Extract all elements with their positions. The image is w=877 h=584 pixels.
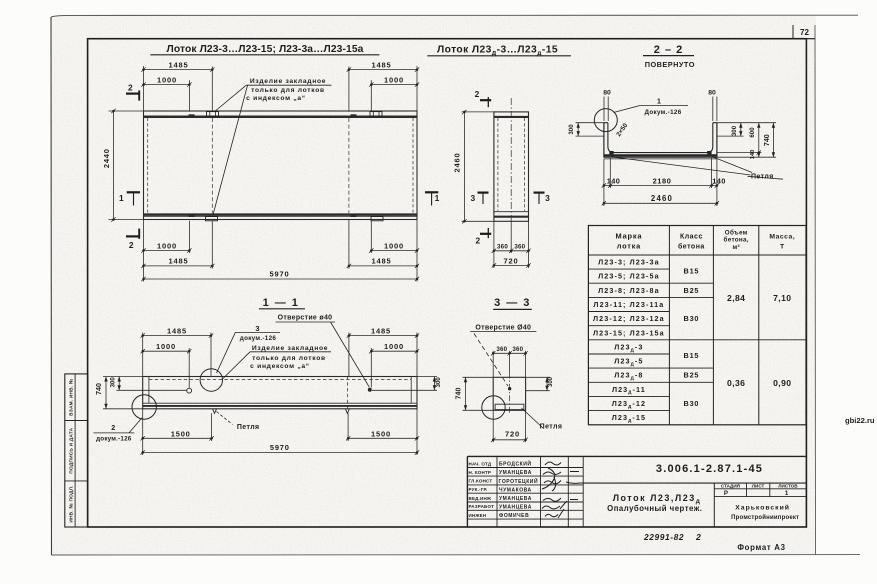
svg-text:Класс: Класс: [680, 234, 703, 241]
svg-text:ГОРОТЕЦКИЙ: ГОРОТЕЦКИЙ: [499, 477, 539, 485]
svg-text:Лоток Л23-3…Л23-15; Л23-3а…Л23: Лоток Л23-3…Л23-15; Л23-3а…Л23-15а: [167, 44, 364, 55]
svg-text:1: 1: [785, 490, 789, 497]
svg-text:1000: 1000: [157, 76, 177, 85]
svg-text:Л23-5; Л23-5а: Л23-5; Л23-5а: [598, 272, 660, 281]
svg-text:360: 360: [512, 346, 523, 353]
svg-text:300: 300: [548, 376, 554, 387]
svg-text:ЧУМАКОВА: ЧУМАКОВА: [499, 487, 532, 493]
svg-text:2: 2: [695, 532, 701, 542]
svg-text:докум.-126: докум.-126: [96, 436, 132, 443]
svg-text:2440: 2440: [102, 148, 111, 168]
svg-text:2: 2: [129, 240, 134, 250]
svg-text:2460: 2460: [453, 153, 462, 173]
svg-text:600: 600: [749, 127, 756, 138]
svg-text:Т: Т: [780, 244, 785, 251]
svg-text:м³: м³: [733, 244, 740, 251]
svg-text:2,84: 2,84: [727, 293, 745, 303]
svg-text:740: 740: [763, 134, 771, 146]
svg-text:ВЕД.ИНЖ: ВЕД.ИНЖ: [469, 496, 492, 501]
svg-text:Изделие закладное: Изделие закладное: [252, 345, 328, 352]
svg-text:140: 140: [607, 177, 621, 186]
svg-text:В30: В30: [684, 399, 700, 408]
svg-text:ФОМИЧЕВ: ФОМИЧЕВ: [499, 513, 529, 519]
svg-text:2 – 2: 2 – 2: [654, 44, 683, 56]
svg-text:ГЛ.КОНСТ: ГЛ.КОНСТ: [469, 479, 493, 484]
svg-text:ПОДПИСЬ И ДАТА: ПОДПИСЬ И ДАТА: [69, 427, 75, 473]
svg-text:3.006.1-2.87.1-45: 3.006.1-2.87.1-45: [656, 463, 763, 475]
svg-text:СТАДИЯ: СТАДИЯ: [721, 484, 740, 489]
svg-text:Л23-15; Л23-15а: Л23-15; Л23-15а: [593, 328, 665, 337]
svg-text:Л23-12; Л23-12а: Л23-12; Л23-12а: [593, 314, 665, 323]
svg-text:1500: 1500: [371, 429, 391, 438]
svg-text:с индексом „а“: с индексом „а“: [250, 363, 310, 370]
svg-text:140: 140: [712, 177, 726, 186]
svg-text:Объем: Объем: [725, 229, 748, 237]
svg-text:УМАНЦЕВА: УМАНЦЕВА: [499, 504, 532, 510]
svg-text:1000: 1000: [384, 241, 404, 250]
svg-text:ЛИСТОВ: ЛИСТОВ: [778, 484, 798, 489]
svg-text:1: 1: [435, 193, 440, 203]
svg-text:gbi22.ru: gbi22.ru: [845, 416, 875, 425]
svg-text:В15: В15: [684, 267, 700, 276]
svg-text:с индексом „а“: с индексом „а“: [246, 95, 306, 102]
svg-text:Опалубочный чертеж.: Опалубочный чертеж.: [607, 504, 702, 513]
svg-text:1485: 1485: [372, 60, 392, 69]
svg-text:Р: Р: [724, 490, 728, 497]
svg-text:360: 360: [497, 243, 508, 250]
svg-text:80: 80: [708, 89, 716, 96]
svg-text:Формат А3: Формат А3: [737, 543, 785, 552]
svg-text:1485: 1485: [372, 257, 392, 266]
svg-text:ИНЖЕН: ИНЖЕН: [469, 513, 487, 518]
svg-text:1485: 1485: [169, 60, 189, 69]
svg-text:3: 3: [545, 193, 550, 203]
svg-text:1500: 1500: [171, 429, 191, 438]
svg-text:УМАНЦЕВА: УМАНЦЕВА: [499, 470, 532, 476]
svg-text:5970: 5970: [270, 270, 290, 279]
svg-text:0,36: 0,36: [727, 378, 745, 388]
svg-text:3: 3: [255, 324, 259, 333]
svg-text:только для лотков: только для лотков: [252, 355, 326, 362]
svg-text:Масса,: Масса,: [769, 234, 795, 241]
svg-text:Л23-8; Л23-8а: Л23-8; Л23-8а: [598, 286, 660, 295]
svg-text:300: 300: [731, 125, 738, 136]
svg-text:2: 2: [128, 83, 133, 93]
svg-text:Л23-3; Л23-3а: Л23-3; Л23-3а: [598, 258, 660, 267]
svg-text:2: 2: [475, 236, 480, 246]
svg-text:1 — 1: 1 — 1: [263, 297, 300, 309]
svg-text:300: 300: [568, 124, 575, 135]
svg-text:В25: В25: [684, 286, 700, 295]
svg-text:2180: 2180: [653, 177, 672, 186]
svg-text:РУК.-ГР.: РУК.-ГР.: [469, 487, 488, 492]
svg-text:2460: 2460: [651, 194, 673, 203]
svg-text:Н. КОНТР: Н. КОНТР: [469, 470, 492, 475]
svg-text:1: 1: [657, 98, 661, 105]
svg-text:1000: 1000: [384, 76, 404, 85]
svg-text:УМАНЦЕВА: УМАНЦЕВА: [499, 496, 532, 502]
svg-text:740: 740: [95, 383, 103, 395]
svg-text:Л23-11; Л23-11а: Л23-11; Л23-11а: [593, 300, 664, 309]
svg-text:Марка: Марка: [616, 232, 643, 241]
svg-text:Петля: Петля: [540, 423, 563, 430]
svg-text:только для лотков: только для лотков: [251, 87, 325, 94]
svg-text:140: 140: [750, 149, 756, 160]
svg-text:Петля: Петля: [237, 424, 260, 431]
svg-text:РАЗРАБОТ: РАЗРАБОТ: [469, 504, 495, 509]
svg-text:ИНВ. № ПОДЛ.: ИНВ. № ПОДЛ.: [69, 485, 75, 522]
svg-text:ЛИСТ: ЛИСТ: [752, 484, 765, 489]
svg-text:1000: 1000: [384, 342, 404, 351]
svg-text:5970: 5970: [270, 443, 290, 452]
svg-text:1000: 1000: [157, 241, 177, 250]
svg-text:360: 360: [514, 243, 525, 250]
svg-text:3 — 3: 3 — 3: [494, 297, 531, 309]
svg-text:72: 72: [800, 28, 809, 37]
svg-text:2: 2: [475, 89, 480, 99]
svg-text:1: 1: [119, 193, 124, 203]
svg-text:300: 300: [110, 377, 117, 388]
svg-text:Отверстие ø40: Отверстие ø40: [278, 314, 333, 321]
svg-text:В25: В25: [684, 371, 700, 380]
svg-text:740: 740: [455, 388, 462, 400]
svg-text:720: 720: [504, 256, 519, 265]
svg-text:Петля: Петля: [751, 173, 774, 180]
svg-text:1485: 1485: [169, 257, 189, 266]
svg-text:докум.-126: докум.-126: [240, 335, 277, 342]
svg-text:Изделие закладное: Изделие закладное: [250, 78, 326, 85]
svg-text:В30: В30: [684, 314, 700, 323]
svg-text:7,10: 7,10: [773, 293, 791, 303]
svg-text:Харьковский: Харьковский: [735, 504, 790, 512]
svg-text:бетона,: бетона,: [724, 236, 749, 244]
svg-text:ВЗАМ. ИНВ. №: ВЗАМ. ИНВ. №: [69, 379, 75, 416]
svg-text:1000: 1000: [156, 342, 176, 351]
svg-text:бетона: бетона: [678, 243, 705, 251]
svg-text:300: 300: [435, 377, 442, 388]
svg-text:В15: В15: [684, 351, 700, 360]
svg-text:2: 2: [111, 423, 115, 432]
svg-text:Промстройниипроект: Промстройниипроект: [731, 514, 799, 521]
svg-text:НАЧ. ОТД: НАЧ. ОТД: [469, 461, 492, 466]
svg-text:0,90: 0,90: [773, 378, 791, 388]
svg-text:БРОДСКИЙ: БРОДСКИЙ: [499, 460, 532, 468]
svg-text:3: 3: [470, 193, 475, 203]
svg-text:360: 360: [496, 346, 507, 353]
svg-text:80: 80: [603, 90, 611, 97]
svg-text:1485: 1485: [371, 326, 391, 335]
svg-text:ПОВЕРНУТО: ПОВЕРНУТО: [645, 60, 695, 69]
svg-text:720: 720: [505, 429, 520, 438]
svg-text:1485: 1485: [167, 326, 187, 335]
svg-text:Отверстие Ø40: Отверстие Ø40: [475, 324, 531, 331]
svg-text:лотка: лотка: [617, 242, 641, 251]
svg-text:Докум.-126: Докум.-126: [645, 109, 682, 116]
svg-text:22991-82: 22991-82: [643, 532, 684, 542]
